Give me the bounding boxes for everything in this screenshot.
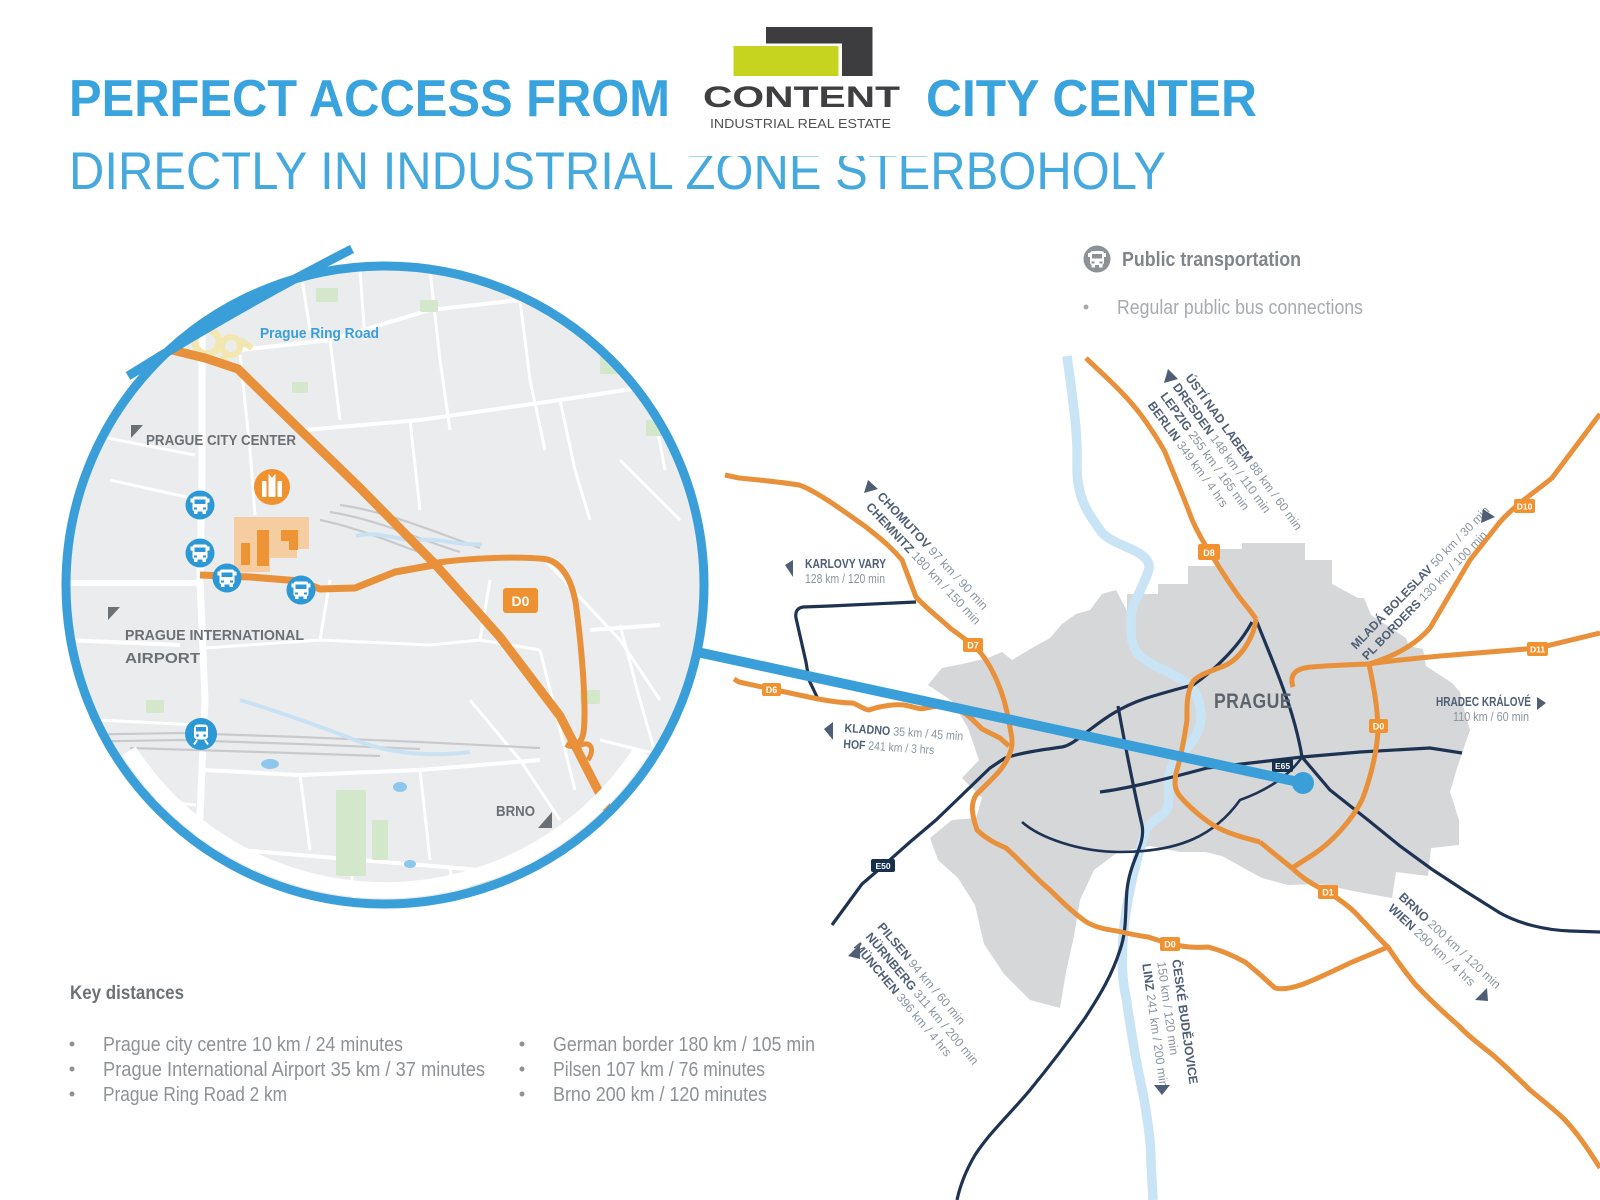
svg-text:Regular public bus connections: Regular public bus connections: [1117, 297, 1363, 319]
svg-text:PRAGUE: PRAGUE: [1214, 690, 1292, 713]
svg-text:D6: D6: [766, 685, 778, 695]
svg-text:E50: E50: [875, 861, 890, 871]
svg-text:HRADEC KRÁLOVÉ: HRADEC KRÁLOVÉ: [1436, 694, 1531, 709]
svg-text:Public transportation: Public transportation: [1122, 249, 1301, 271]
svg-text:Prague International Airport: Prague International Airport 35 km / 37 …: [103, 1059, 485, 1081]
svg-text:Pilsen 107 km / 76 minutes: Pilsen 107 km / 76 minutes: [553, 1059, 765, 1081]
svg-text:D1: D1: [1322, 888, 1334, 898]
svg-text:AIRPORT: AIRPORT: [125, 650, 200, 667]
svg-text:D11: D11: [1530, 645, 1545, 655]
svg-text:D0: D0: [1373, 722, 1385, 732]
svg-text:D8: D8: [1203, 548, 1215, 558]
svg-text:CONTENT: CONTENT: [703, 81, 900, 114]
svg-text:German border 180 km / 105 min: German border 180 km / 105 min: [553, 1034, 815, 1056]
svg-text:KARLOVY VARY: KARLOVY VARY: [805, 557, 887, 571]
svg-text:PL BORDERS 130 km / 100 min: PL BORDERS 130 km / 100 min: [1359, 528, 1490, 663]
svg-text:CITY CENTER: CITY CENTER: [926, 70, 1257, 128]
svg-text:E65: E65: [1275, 761, 1290, 771]
svg-text:Key distances: Key distances: [70, 983, 184, 1004]
svg-text:NÜRNBERG 311 km / 200 min: NÜRNBERG 311 km / 200 min: [863, 929, 983, 1067]
svg-text:PRAGUE INTERNATIONAL: PRAGUE INTERNATIONAL: [125, 627, 304, 644]
svg-text:PERFECT ACCESS FROM: PERFECT ACCESS FROM: [69, 70, 670, 128]
svg-text:INDUSTRIAL REAL ESTATE: INDUSTRIAL REAL ESTATE: [710, 117, 891, 131]
svg-text:128 km / 120 min: 128 km / 120 min: [805, 572, 885, 586]
svg-text:PRAGUE CITY CENTER: PRAGUE CITY CENTER: [146, 432, 296, 449]
svg-text:Prague Ring Road: Prague Ring Road: [260, 325, 379, 342]
svg-text:D0: D0: [512, 593, 530, 609]
svg-text:Prague Ring Road 2 km: Prague Ring Road 2 km: [103, 1084, 287, 1106]
svg-text:D7: D7: [967, 641, 979, 651]
svg-text:DIRECTLY IN INDUSTRIAL ZONE ST: DIRECTLY IN INDUSTRIAL ZONE STERBOHOLY: [69, 142, 1166, 201]
svg-text:Brno 200 km / 120 minutes: Brno 200 km / 120 minutes: [553, 1084, 767, 1106]
svg-text:Prague city centre 10 km / 24: Prague city centre 10 km / 24 minutes: [103, 1034, 403, 1056]
svg-text:MLADÁ BOLESLAV 50 km / 30 min: MLADÁ BOLESLAV 50 km / 30 min: [1347, 503, 1492, 652]
svg-text:BRNO: BRNO: [496, 803, 535, 820]
svg-text:D0: D0: [1164, 940, 1176, 950]
svg-text:D10: D10: [1517, 502, 1533, 512]
svg-text:110 km / 60 min: 110 km / 60 min: [1453, 710, 1529, 724]
